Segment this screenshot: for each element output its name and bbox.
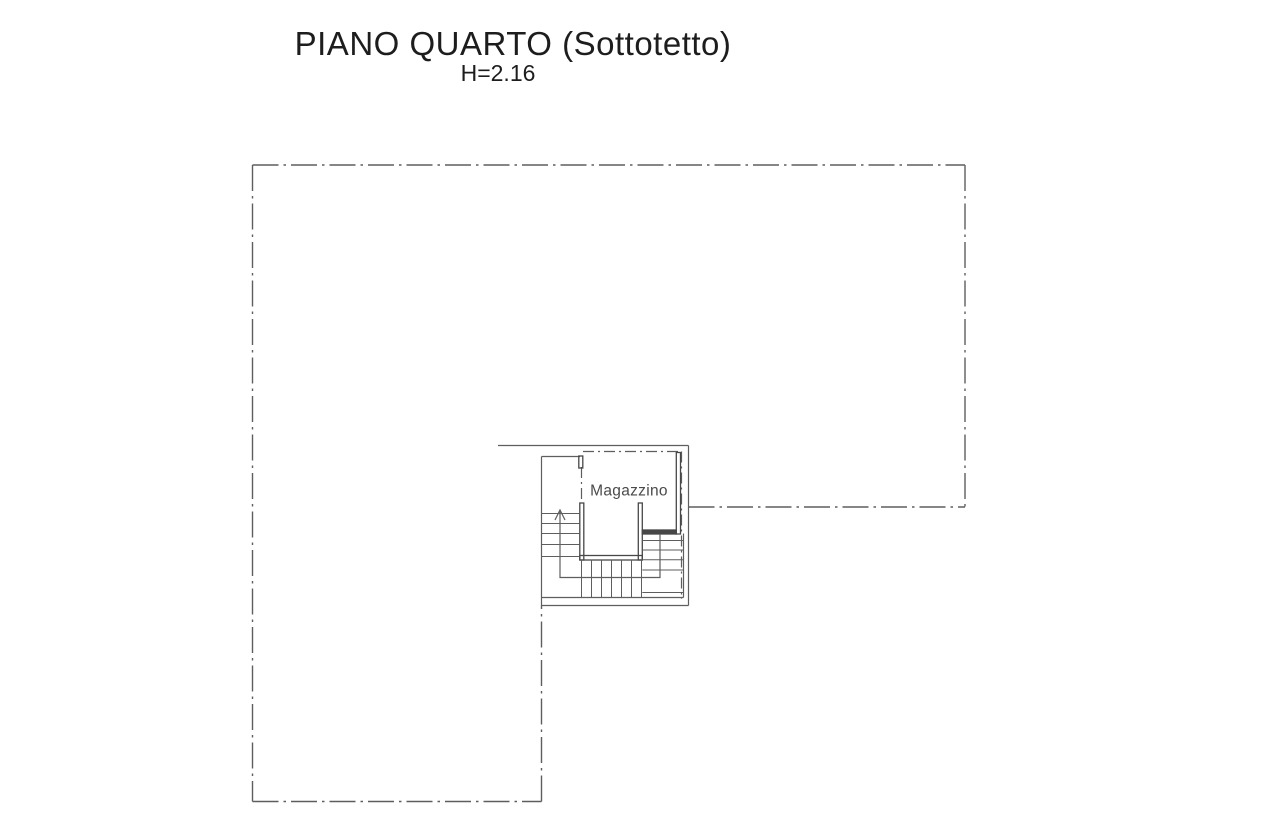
magazzino-lower-right-wall [642,530,676,534]
door-jamb-wall [579,456,583,468]
title-block: PIANO QUARTO (Sottotetto) H=2.16 [295,25,732,86]
floor-plan-drawing: PIANO QUARTO (Sottotetto) H=2.16 [0,0,1280,825]
stair-walk-line [555,510,660,578]
stair-block-outline [498,446,689,606]
magazzino-bottom-wall [580,556,643,561]
magazzino-walls [579,453,681,561]
height-label: H=2.16 [461,60,536,86]
floor-plan-page: PIANO QUARTO (Sottotetto) H=2.16 [0,0,1280,825]
magazzino-outer-right-wall [676,453,680,535]
page-title: PIANO QUARTO (Sottotetto) [295,25,732,62]
room-label-magazzino: Magazzino [590,483,668,500]
magazzino-left-wall [580,503,584,560]
